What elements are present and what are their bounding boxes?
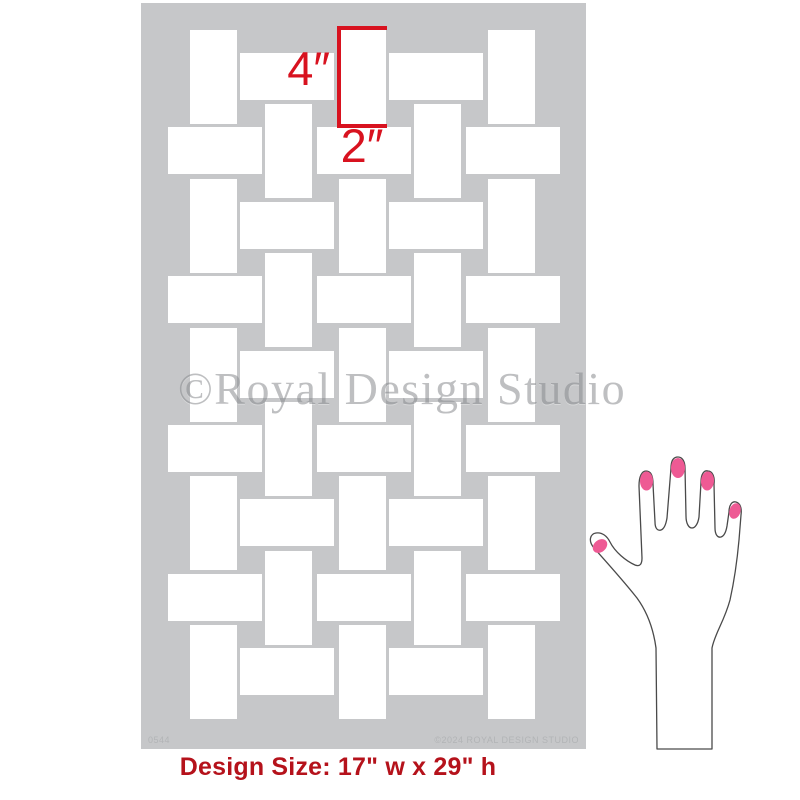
stencil-brick — [240, 202, 334, 249]
stencil-brick — [414, 402, 461, 496]
stencil-brick — [466, 425, 560, 472]
middle-nail — [671, 458, 685, 478]
stencil-brick — [240, 499, 334, 546]
stencil-brick — [317, 425, 411, 472]
stencil-brick — [466, 127, 560, 174]
stencil-brick — [389, 202, 483, 249]
stencil-brick — [168, 425, 262, 472]
stencil-brick — [488, 476, 535, 570]
stencil-brick — [265, 551, 312, 645]
product-image: 0544 ©2024 ROYAL DESIGN STUDIO ©Royal De… — [0, 0, 800, 800]
stencil-brick — [240, 648, 334, 695]
stencil-brick — [265, 402, 312, 496]
stencil-brick — [488, 179, 535, 273]
stencil-copyright: ©2024 ROYAL DESIGN STUDIO — [434, 735, 579, 745]
stencil-brick — [168, 127, 262, 174]
stencil-brick — [317, 276, 411, 323]
stencil-brick — [466, 276, 560, 323]
stencil-brick — [265, 104, 312, 198]
stencil-brick — [339, 625, 386, 719]
stencil-brick — [414, 104, 461, 198]
stencil-brick — [414, 551, 461, 645]
stencil-brick — [339, 179, 386, 273]
width-dimension-label: 2″ — [333, 122, 391, 169]
stencil-brick — [190, 179, 237, 273]
stencil-brick — [190, 476, 237, 570]
stencil-brick — [317, 574, 411, 621]
stencil-brick — [190, 30, 237, 124]
design-size-label: Design Size: 17" w x 29" h — [0, 753, 676, 782]
stencil-brick — [389, 53, 483, 100]
stencil-brick — [168, 276, 262, 323]
height-dimension-label: 4″ — [238, 45, 330, 92]
stencil-brick — [190, 625, 237, 719]
stencil-brick — [339, 476, 386, 570]
hand-outline — [590, 457, 741, 749]
index-nail — [640, 472, 653, 491]
stencil-brick — [389, 648, 483, 695]
stencil-brick — [466, 574, 560, 621]
stencil-brick — [389, 499, 483, 546]
stencil-brick — [414, 253, 461, 347]
dimension-bracket — [337, 26, 387, 128]
stencil-brick — [265, 253, 312, 347]
stencil-brick — [488, 625, 535, 719]
stencil-code: 0544 — [148, 735, 170, 745]
stencil-brick — [168, 574, 262, 621]
hand-illustration — [588, 450, 748, 750]
watermark-text: ©Royal Design Studio — [92, 366, 712, 412]
stencil-brick — [488, 30, 535, 124]
